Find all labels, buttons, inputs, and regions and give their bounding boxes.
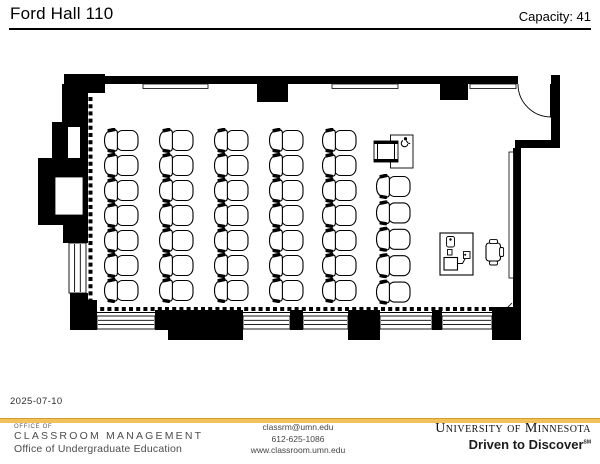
wall-segment: [513, 148, 521, 308]
chair: [105, 127, 139, 153]
chair: [323, 127, 357, 153]
wall-segment: [551, 75, 560, 140]
door: [518, 84, 551, 117]
accessible-table: [374, 141, 398, 162]
floor-plan-page: Ford Hall 110 Capacity: 41: [0, 0, 600, 464]
tagline-text: Driven to Discover: [469, 437, 584, 452]
instructor-station: [440, 233, 473, 275]
wall-notch: [68, 127, 80, 158]
chair-armrest: [490, 261, 498, 265]
chair: [215, 202, 249, 228]
chair: [270, 202, 304, 228]
control-panel-icon: [448, 250, 453, 256]
chair: [105, 177, 139, 203]
chair: [215, 127, 249, 153]
chair: [270, 227, 304, 253]
window: [69, 243, 86, 293]
chair: [377, 279, 411, 305]
wall-corner: [70, 300, 97, 330]
monitor-icon: [444, 258, 458, 271]
wall-segment: [62, 84, 88, 122]
floor-plan: [0, 0, 600, 464]
contact-website: www.classroom.umn.edu: [233, 445, 363, 457]
wall-corner: [492, 307, 521, 340]
chair: [377, 253, 411, 279]
university-brand: University of Minnesota Driven to Discov…: [435, 421, 591, 452]
document-camera-icon: [447, 237, 455, 248]
office-block: OFFICE OF CLASSROOM MANAGEMENT Office of…: [14, 424, 203, 455]
chair: [160, 202, 194, 228]
wall-pier: [440, 84, 468, 100]
chair: [160, 277, 194, 303]
student-chairs: [105, 127, 411, 304]
wheelchair-station: [374, 135, 413, 168]
wall-pier: [348, 310, 380, 340]
chair: [323, 277, 357, 303]
service-mark: SM: [584, 440, 592, 446]
window: [442, 316, 492, 329]
chair: [270, 277, 304, 303]
window: [380, 316, 432, 329]
camera-lens-icon: [449, 238, 451, 240]
wall-segment: [64, 76, 518, 84]
chair: [377, 226, 411, 252]
university-tagline: Driven to DiscoverSM: [435, 437, 591, 452]
chair: [215, 252, 249, 278]
marker-board: [509, 152, 514, 278]
chair: [215, 277, 249, 303]
wall-pier: [168, 330, 243, 340]
wall-pier: [257, 84, 288, 102]
window: [303, 316, 348, 329]
chair: [160, 252, 194, 278]
chair: [105, 277, 139, 303]
chair: [215, 152, 249, 178]
chair: [160, 177, 194, 203]
chair: [323, 177, 357, 203]
wall-segment: [63, 225, 88, 243]
chair: [105, 227, 139, 253]
contact-block: classrm@umn.edu 612-625-1086 www.classro…: [233, 422, 363, 457]
marker-board: [332, 84, 398, 89]
chair: [160, 227, 194, 253]
contact-phone: 612-625-1086: [233, 434, 363, 446]
door-swing-arc: [518, 84, 551, 117]
chair: [160, 127, 194, 153]
chair: [270, 177, 304, 203]
office-name: CLASSROOM MANAGEMENT: [14, 430, 203, 442]
wall-segment: [515, 140, 560, 148]
office-subtitle: Office of Undergraduate Education: [14, 443, 203, 455]
chair: [105, 152, 139, 178]
chair: [377, 173, 411, 199]
chair: [323, 252, 357, 278]
chair: [160, 152, 194, 178]
chair: [270, 152, 304, 178]
chair: [377, 200, 411, 226]
wall-niche: [55, 177, 83, 215]
chair-armrest: [490, 240, 498, 244]
chair: [105, 202, 139, 228]
date-label: 2025-07-10: [10, 396, 63, 407]
task-chair: [486, 240, 504, 265]
equipment-knob: [464, 254, 466, 256]
marker-board: [143, 84, 208, 89]
contact-email: classrm@umn.edu: [233, 422, 363, 434]
window: [97, 316, 155, 329]
chair: [215, 177, 249, 203]
university-wordmark: University of Minnesota: [435, 421, 591, 437]
chair-back: [500, 248, 504, 257]
chair: [323, 227, 357, 253]
chair: [270, 252, 304, 278]
chair: [323, 202, 357, 228]
chair: [323, 152, 357, 178]
chair: [105, 252, 139, 278]
chair: [215, 227, 249, 253]
marker-board: [470, 84, 516, 89]
chair: [270, 127, 304, 153]
window: [243, 316, 290, 329]
